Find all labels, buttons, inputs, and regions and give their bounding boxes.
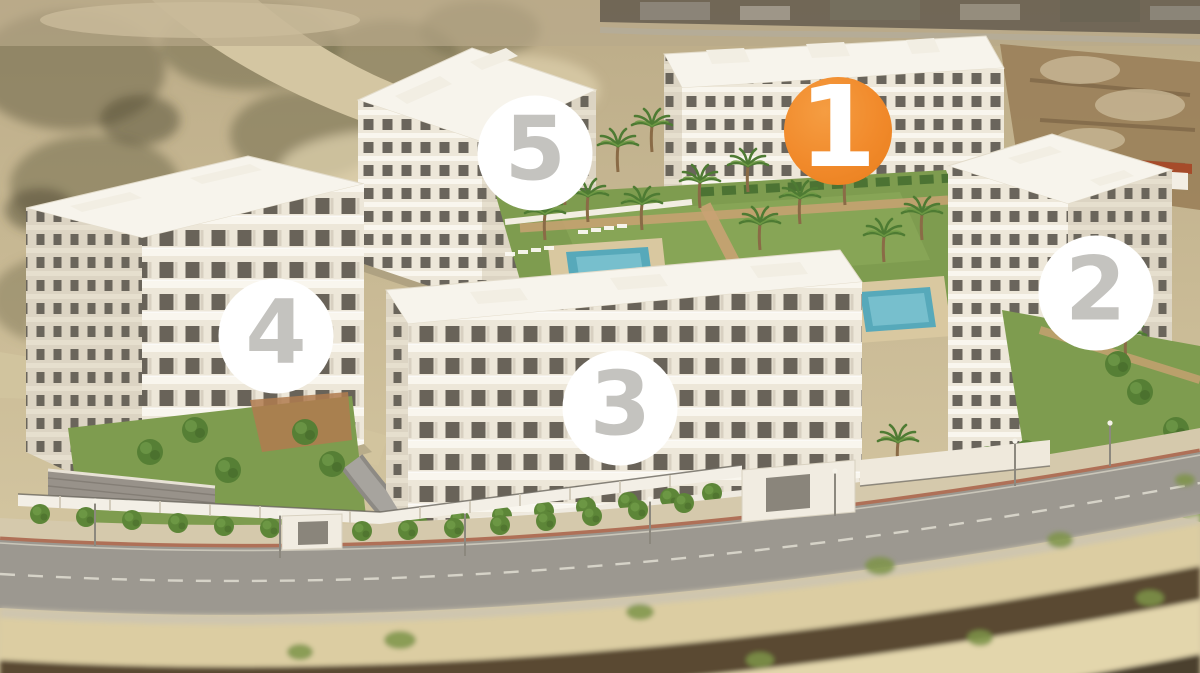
building-marker-2-label: 2 — [1065, 246, 1126, 334]
building-marker-3-label: 3 — [590, 361, 651, 449]
building-marker-4[interactable]: 4 — [219, 278, 334, 393]
aerial-render — [0, 0, 1200, 673]
building-marker-3[interactable]: 3 — [563, 350, 678, 465]
building-marker-1[interactable]: 1 — [784, 77, 892, 185]
building-marker-1-label: 1 — [799, 72, 877, 184]
building-marker-5-label: 5 — [505, 106, 566, 194]
town-strip — [0, 0, 1200, 46]
building-marker-5[interactable]: 5 — [478, 95, 593, 210]
building-marker-4-label: 4 — [245, 289, 306, 377]
building-marker-2[interactable]: 2 — [1038, 235, 1153, 350]
site-plan: 1 2 3 4 5 — [0, 0, 1200, 673]
